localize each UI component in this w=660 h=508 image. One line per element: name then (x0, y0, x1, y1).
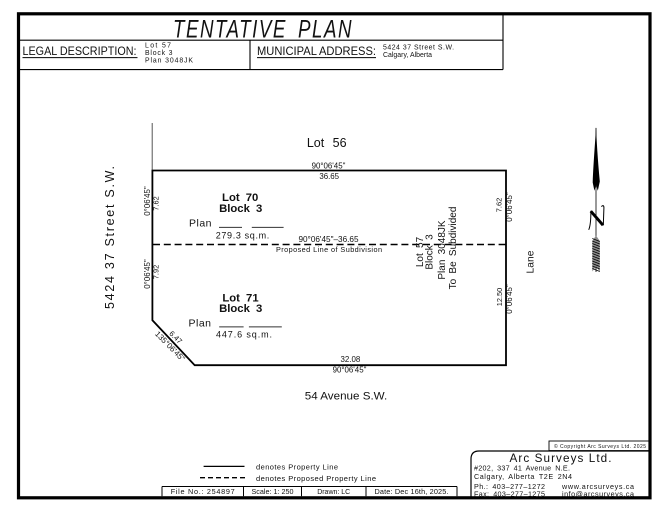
svg-text:0°06'45": 0°06'45" (143, 259, 152, 289)
svg-text:Block 3: Block 3 (219, 303, 262, 315)
svg-text:90°06'45"–36.65: 90°06'45"–36.65 (298, 235, 359, 244)
svg-text:Lot 57: Lot 57 (145, 43, 171, 50)
svg-text:LEGAL DESCRIPTION:: LEGAL DESCRIPTION: (23, 44, 137, 58)
svg-text:Fax: 403–277–1275: Fax: 403–277–1275 (474, 489, 545, 498)
svg-text:Plan: Plan (189, 318, 212, 330)
svg-text:© Copyright Arc Surveys Ltd: © Copyright Arc Surveys Ltd. 2025 (554, 443, 646, 450)
svg-text:Plan 3048JK: Plan 3048JK (145, 57, 193, 64)
svg-text:0°06'45": 0°06'45" (143, 186, 152, 216)
svg-text:To Be Subdivided: To Be Subdivided (448, 207, 459, 290)
svg-text:279.3 sq.m.: 279.3 sq.m. (216, 230, 270, 240)
svg-text:447.6 sq.m.: 447.6 sq.m. (216, 329, 272, 339)
svg-text:12.50: 12.50 (495, 288, 504, 307)
svg-text:54 Avenue S.W.: 54 Avenue S.W. (305, 391, 388, 403)
svg-text:denotes Property Line: denotes Property Line (256, 463, 338, 472)
svg-text:Lot 56: Lot 56 (307, 136, 347, 150)
svg-text:0°06'45": 0°06'45" (505, 192, 514, 222)
svg-text:info@arcsurveys.ca: info@arcsurveys.ca (562, 489, 634, 498)
svg-text:Plan 3048JK: Plan 3048JK (437, 220, 448, 280)
svg-text:Proposed Line of Subdivisio: Proposed Line of Subdivision (276, 245, 382, 254)
svg-text:TENTATIVE PLAN: TENTATIVE PLAN (173, 16, 353, 44)
svg-text:7.92: 7.92 (152, 265, 161, 279)
svg-text:0°06'45": 0°06'45" (505, 284, 514, 314)
svg-text:Plan: Plan (189, 217, 212, 229)
svg-text:MUNICIPAL ADDRESS:: MUNICIPAL ADDRESS: (257, 44, 376, 58)
svg-text:Scale: 1: 250: Scale: 1: 250 (252, 487, 294, 496)
svg-text:7.62: 7.62 (495, 198, 504, 213)
svg-text:7.62: 7.62 (152, 196, 161, 210)
svg-text:Lane: Lane (526, 250, 537, 273)
svg-text:denotes Proposed Property L: denotes Proposed Property Line (256, 474, 376, 483)
svg-text:5424 37 Street S.W.: 5424 37 Street S.W. (383, 45, 454, 52)
svg-text:Block 3: Block 3 (145, 50, 173, 57)
svg-text:90°06'45": 90°06'45" (312, 161, 346, 170)
svg-text:36.65: 36.65 (319, 172, 339, 181)
svg-text:Drawn: LC: Drawn: LC (317, 487, 350, 496)
svg-text:Block 3: Block 3 (219, 203, 262, 215)
svg-text:5424 37 Street S.W.: 5424 37 Street S.W. (103, 166, 117, 309)
svg-text:Calgary, Alberta: Calgary, Alberta (383, 52, 432, 59)
svg-text:Date: Dec 16th, 2025.: Date: Dec 16th, 2025. (375, 487, 449, 496)
svg-text:File No.: 254897: File No.: 254897 (171, 487, 235, 496)
svg-text:32.08: 32.08 (341, 355, 361, 364)
svg-text:90°06'45": 90°06'45" (333, 366, 367, 375)
svg-text:Block 3: Block 3 (425, 234, 436, 270)
svg-text:Calgary, Alberta T2E 2N4: Calgary, Alberta T2E 2N4 (474, 472, 572, 481)
